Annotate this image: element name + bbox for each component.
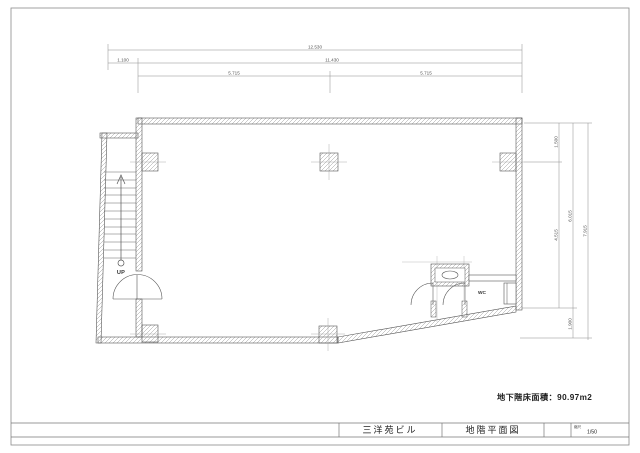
wall-left-outer: [96, 133, 107, 343]
dim-right-mid: 4.515: [554, 229, 559, 241]
wc-door-stub: [431, 301, 436, 317]
staircase: UP: [104, 172, 136, 276]
walls: [96, 118, 522, 343]
drawing-sheet: 三洋苑ビル 地階平面図 縮尺 1/50 地下階床面積：90.97m2 12.53…: [0, 0, 640, 453]
stair-start-circle: [118, 260, 124, 266]
wall-left-inner-lower: [136, 299, 142, 337]
door-swing-arc: [113, 275, 162, 300]
wall-diagonal: [338, 306, 516, 343]
wc-door-swing-arc: [411, 283, 433, 305]
scale-label: 縮尺: [574, 424, 582, 429]
columns: [142, 153, 516, 343]
wall-left-inner-upper: [136, 118, 142, 271]
dim-right-upper-total: 6.015: [568, 210, 573, 222]
wc-label: WC: [478, 290, 487, 296]
dim-total-width: 12.530: [308, 45, 322, 50]
wall-stair-cap: [100, 133, 138, 138]
top-dimension-lines: [108, 44, 522, 93]
up-label: UP: [117, 270, 125, 276]
dim-main-width: 11.430: [325, 58, 339, 63]
entrance-door: [113, 275, 162, 300]
wc-partition-wall: [469, 275, 516, 281]
dim-right-lower: 1.900: [568, 318, 573, 330]
drawing-title: 地階平面図: [465, 424, 520, 435]
wc-door-stub: [462, 301, 467, 317]
scale-value: 1/50: [587, 430, 597, 436]
stair-treads: [104, 172, 136, 258]
wall-right: [516, 118, 522, 310]
wall-niche: [504, 283, 516, 304]
floor-area-note: 地下階床面積：90.97m2: [497, 392, 592, 402]
wall-bottom: [98, 337, 338, 343]
column: [142, 325, 158, 342]
dim-right-total: 7.915: [583, 225, 588, 237]
building-name: 三洋苑ビル: [362, 424, 417, 435]
dim-left-bay: 1.100: [117, 58, 129, 63]
floorplan-canvas: 三洋苑ビル 地階平面図 縮尺 1/50 地下階床面積：90.97m2 12.53…: [0, 0, 640, 453]
toilet-fixture: [442, 271, 458, 279]
dim-right-top: 1.500: [554, 136, 559, 148]
dim-span-left: 5.715: [228, 71, 240, 76]
dim-span-right: 5.715: [420, 71, 432, 76]
wall-top: [138, 118, 522, 124]
